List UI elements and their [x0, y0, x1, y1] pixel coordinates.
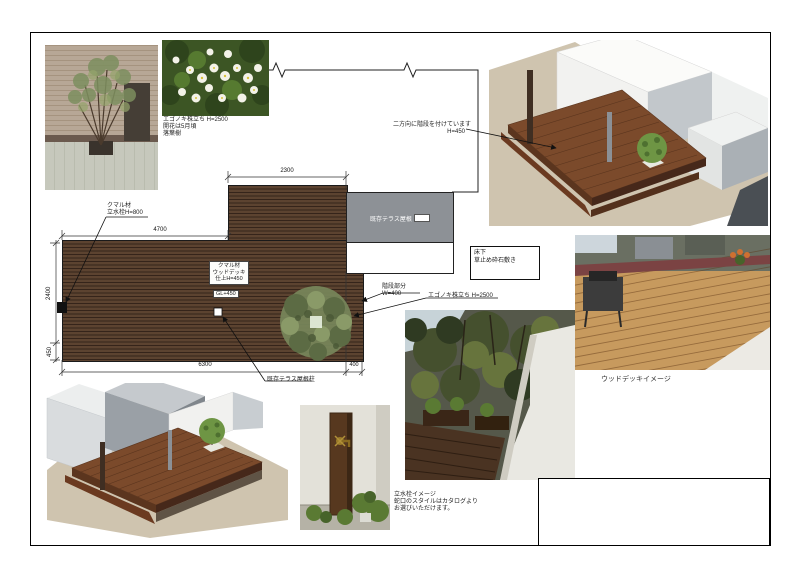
tap-label-line1: クマル材	[107, 203, 143, 210]
drawing-page: エゴノキ株立ち H=2500 開花は5月頃 落葉樹 既存テラス屋根 クマル材 ウ…	[0, 0, 800, 574]
render-note-line2: H=450	[393, 129, 465, 136]
water-tap-photo	[300, 405, 390, 530]
canopy-label-highlight	[414, 214, 430, 222]
flower-caption: エゴノキ株立ち H=2500 開花は5月頃 落葉樹	[163, 117, 228, 138]
tree-photo	[45, 45, 158, 190]
tap-note-line1: 立水栓イメージ	[394, 492, 478, 499]
deck-image-caption: ウッドデッキイメージ	[601, 376, 671, 384]
canopy-label: 既存テラス屋根	[370, 214, 412, 223]
render-3d-bottom	[45, 383, 290, 540]
tap-label-line2: 立水栓H=800	[107, 210, 143, 217]
balcony-illustration	[575, 235, 770, 370]
existing-canopy-outline: 既存テラス屋根	[346, 192, 454, 244]
note-line1: 床下	[474, 249, 536, 257]
gravel-note-box: 床下 草止め砕石敷き	[470, 246, 540, 280]
dim-4700: 4700	[130, 227, 190, 233]
deck-material-label: クマル材 ウッドデッキ 仕上H=450	[209, 261, 249, 285]
plan-upper-deck	[228, 185, 348, 243]
step-label-line2: W=400	[382, 291, 406, 298]
dim-left: 2400	[46, 287, 52, 300]
step-label-line1: 階段部分	[382, 284, 406, 291]
dim-top: 2300	[272, 168, 302, 174]
step-label: 階段部分 W=400	[382, 284, 406, 298]
roof-post-label: 既存テラス屋根柱	[267, 377, 315, 384]
tree-label: エゴノキ株立ち H=2500	[428, 293, 493, 300]
balcony-deck-photo	[575, 235, 770, 370]
render-note: 二方向に階段を付けています H=450	[393, 122, 465, 136]
tree-illustration	[45, 45, 158, 190]
dim-left-lower: 450	[47, 347, 53, 357]
deck-level-tag: GL+450	[213, 290, 239, 298]
tap-label: クマル材 立水栓H=800	[107, 203, 143, 217]
flower-photo	[162, 40, 269, 116]
render-note-line1: 二方向に階段を付けています	[393, 122, 465, 129]
water-tap-illustration	[300, 405, 390, 530]
plan-main-deck	[62, 240, 364, 362]
deck-garden-illustration	[405, 310, 575, 480]
tap-note-line3: お選びいただけます。	[394, 506, 478, 513]
tap-note: 立水栓イメージ 蛇口のスタイルはカタログより お選びいただけます。	[394, 492, 478, 513]
flower-caption-line2: 開花は5月頃	[163, 124, 228, 131]
render-3d-top	[487, 40, 768, 230]
dim-bottom-right: 400	[343, 362, 365, 368]
existing-structure-outline	[346, 242, 454, 274]
deck-garden-photo	[405, 310, 575, 480]
note-line2: 草止め砕石敷き	[474, 257, 536, 265]
title-block	[538, 478, 770, 546]
flower-caption-line3: 落葉樹	[163, 131, 228, 138]
flower-caption-line1: エゴノキ株立ち H=2500	[163, 117, 228, 124]
dim-bottom: 6300	[175, 362, 235, 368]
tap-note-line2: 蛇口のスタイルはカタログより	[394, 499, 478, 506]
deck-label-line3: 仕上H=450	[210, 276, 248, 283]
flower-illustration	[162, 40, 269, 116]
